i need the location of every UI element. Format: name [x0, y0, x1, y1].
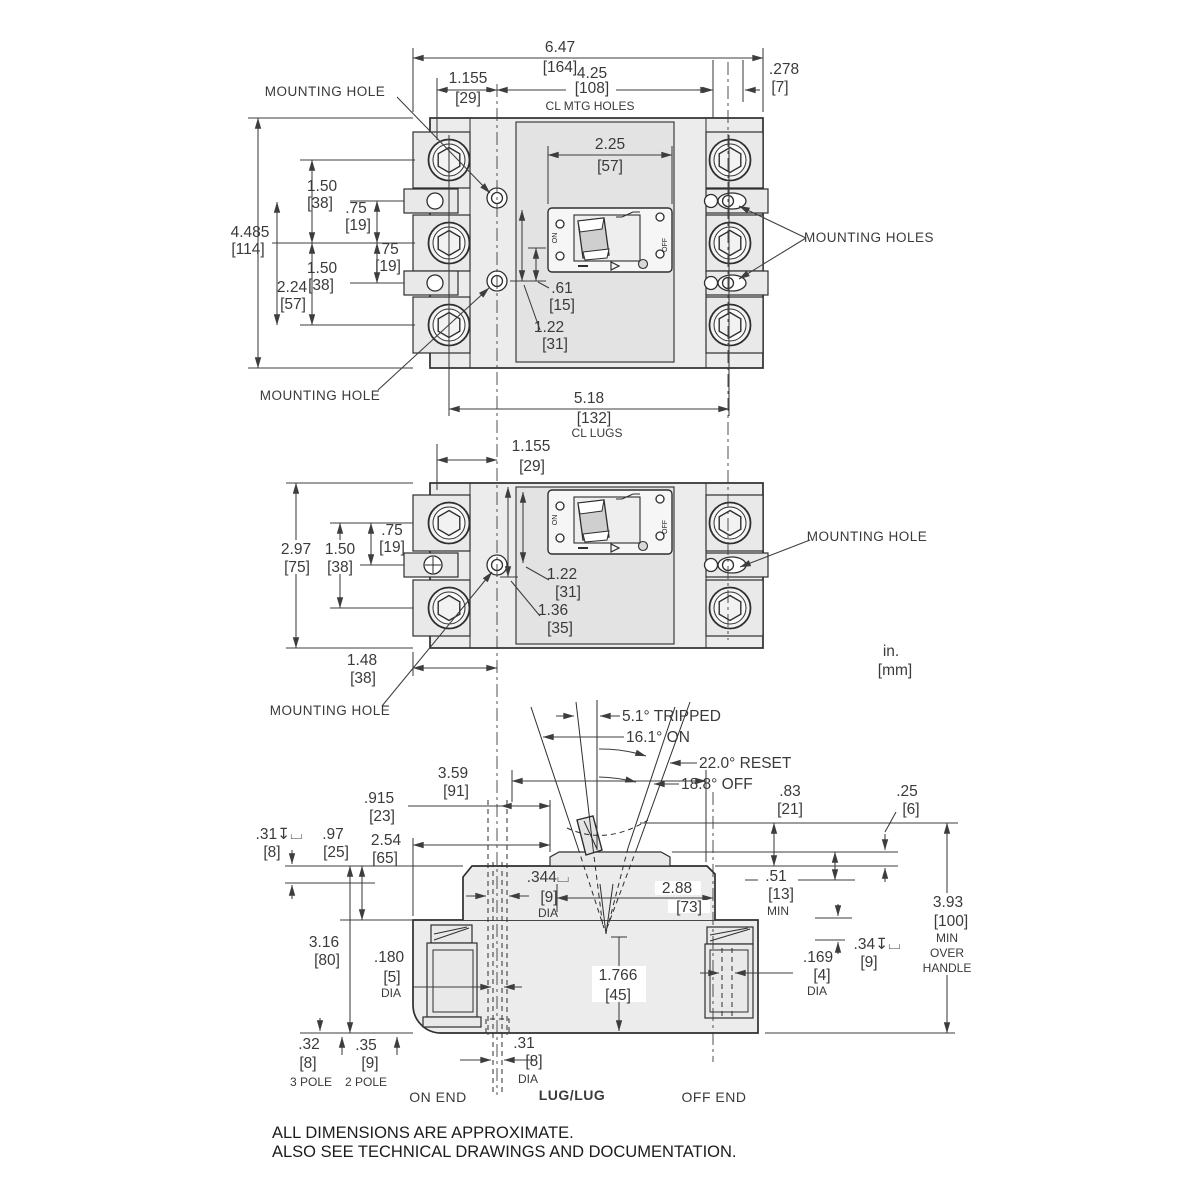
dims-32-in: .32: [298, 1036, 320, 1053]
label-mounting-hole-bottom: MOUNTING HOLE: [260, 388, 381, 403]
dim-122-in: 1.22: [534, 319, 564, 336]
dims-180-mm: [5]: [383, 969, 400, 986]
dim2-tab-mm: [19]: [379, 539, 405, 556]
dims-31cb-in: .31↧⌴: [256, 826, 303, 843]
dims-169-mm: [4]: [813, 967, 830, 984]
angle-off: 18.8° OFF: [681, 776, 753, 793]
dims-35-pole2: 2 POLE: [345, 1075, 387, 1089]
dim2-tab-in: .75: [381, 522, 403, 539]
label-mounting-hole-mid: MOUNTING HOLE: [270, 703, 391, 718]
dim-pitch-b-mm: [38]: [308, 277, 334, 294]
dims-83-in: .83: [779, 783, 801, 800]
dim-pitch-a-in: 1.50: [307, 178, 338, 195]
dims-169-dia: DIA: [807, 984, 827, 998]
dims-254-in: 2.54: [371, 832, 402, 849]
dims-25-in: .25: [896, 783, 918, 800]
dim2-hole-offset-in: 1.155: [512, 438, 551, 455]
dims-51-in: .51: [765, 868, 787, 885]
dims-359-in: 3.59: [438, 765, 468, 782]
drawing-canvas: ON OFF: [0, 0, 1200, 1200]
dims-344-dia: DIA: [538, 906, 558, 920]
dims-51-min: MIN: [767, 904, 789, 918]
dims-25-mm: [6]: [902, 801, 919, 818]
dims-180-dia: DIA: [381, 986, 401, 1000]
dims-180-in: .180: [374, 949, 405, 966]
dims-97-in: .97: [322, 826, 344, 843]
dims-393-handle: HANDLE: [923, 961, 972, 975]
dims-359-mm: [91]: [443, 783, 469, 800]
dim-tab-b-mm: [19]: [375, 258, 401, 275]
dim2-148-mm: [38]: [350, 670, 376, 687]
dims-51-mm: [13]: [768, 886, 794, 903]
dims-32-mm: [8]: [299, 1055, 316, 1072]
angle-tripped: 5.1° TRIPPED: [622, 708, 721, 725]
dims-316-mm: [80]: [314, 952, 340, 969]
dim-overall-height-mm: [114]: [231, 241, 264, 258]
dims-393-min: MIN: [936, 931, 958, 945]
units-mm-note: [mm]: [878, 662, 912, 679]
dim2-122-mm: [31]: [555, 584, 581, 601]
dim-lug-span-in: 5.18: [574, 390, 604, 407]
label-mounting-holes-right: MOUNTING HOLES: [804, 230, 934, 245]
label-mounting-hole-top: MOUNTING HOLE: [265, 84, 386, 99]
label-on-end: ON END: [409, 1089, 466, 1105]
dims-34cb-mm: [9]: [860, 954, 877, 971]
note-see-docs: ALSO SEE TECHNICAL DRAWINGS AND DOCUMENT…: [272, 1143, 737, 1161]
dims-31cb-mm: [8]: [263, 844, 280, 861]
dim2-overall-height-in: 2.97: [281, 541, 311, 558]
dim-overall-height-in: 4.485: [231, 224, 270, 241]
dims-32-pole3: 3 POLE: [290, 1075, 332, 1089]
label-off-end: OFF END: [682, 1089, 747, 1105]
dims-393-in: 3.93: [933, 894, 963, 911]
dims-35-mm: [9]: [361, 1055, 378, 1072]
handle-escutcheon: [550, 852, 670, 866]
dim-hole-offset-in: 1.155: [449, 70, 488, 87]
note-approximate: ALL DIMENSIONS ARE APPROXIMATE.: [272, 1124, 574, 1142]
dim2-pitch-mm: [38]: [327, 559, 353, 576]
dims-169-in: .169: [803, 949, 833, 966]
dim-tab-b-in: .75: [377, 241, 399, 258]
dim-face-width-in: 2.25: [595, 136, 625, 153]
dim2-overall-height-mm: [75]: [284, 559, 310, 576]
dims-288-mm: [73]: [676, 899, 702, 916]
angle-reset: 22.0° RESET: [699, 755, 792, 772]
dim-overall-width-in: 6.47: [545, 39, 575, 56]
dim2-122-in: 1.22: [547, 566, 577, 583]
dims-393-mm: [100]: [934, 913, 968, 930]
dims-83-mm: [21]: [777, 801, 803, 818]
dims-344-mm: [9]: [540, 889, 557, 906]
dim-tab-a-mm: [19]: [345, 217, 371, 234]
dims-254-mm: [65]: [372, 850, 398, 867]
dims-31-dia: DIA: [518, 1072, 538, 1086]
dim-122-mm: [31]: [542, 336, 568, 353]
units-inch-note: in.: [883, 643, 899, 660]
dims-915-in: .915: [364, 790, 394, 807]
label-lug-lug: LUG/LUG: [539, 1087, 606, 1103]
label-cl-mtg-holes: CL MTG HOLES: [546, 99, 635, 113]
breaker-dimension-drawing: ON OFF: [0, 0, 1200, 1200]
dims-97-mm: [25]: [323, 844, 349, 861]
dim-hole-span-in: 2.24: [277, 279, 308, 296]
dim2-148-in: 1.48: [347, 652, 377, 669]
dim-face-width-mm: [57]: [597, 158, 623, 175]
dim2-136-mm: [35]: [547, 620, 573, 637]
dim-61-in: .61: [551, 280, 573, 297]
footer-notes: ALL DIMENSIONS ARE APPROXIMATE. ALSO SEE…: [272, 1124, 737, 1161]
dim-tab-a-in: .75: [345, 200, 367, 217]
dim-hole-offset-mm: [29]: [455, 90, 481, 107]
dim-edge-mm: [7]: [771, 79, 788, 96]
dims-316-in: 3.16: [309, 934, 339, 951]
dim-overall-width-mm: [164]: [543, 59, 577, 76]
dim2-hole-offset-mm: [29]: [519, 458, 545, 475]
dim-lug-span-mm: [132]: [577, 410, 611, 427]
dim-61-mm: [15]: [549, 297, 575, 314]
dim-hole-span-mm: [57]: [280, 296, 306, 313]
dims-393-over: OVER: [930, 946, 964, 960]
dim-pitch-b-in: 1.50: [307, 260, 338, 277]
dim-edge-in: .278: [769, 61, 799, 78]
dim-pitch-a-mm: [38]: [307, 195, 333, 212]
dim2-pitch-in: 1.50: [325, 541, 356, 558]
dims-344-in: .344⌴: [527, 869, 570, 886]
angle-on: 16.1° ON: [626, 729, 690, 746]
dims-915-mm: [23]: [369, 808, 395, 825]
dims-35-in: .35: [355, 1037, 377, 1054]
label-cl-lugs: CL LUGS: [572, 426, 623, 440]
dims-288-in: 2.88: [662, 880, 692, 897]
dims-1766-in: 1.766: [599, 967, 638, 984]
view-front-2pole: [404, 483, 768, 648]
dims-31-mm: [8]: [525, 1053, 542, 1070]
dim-mtg-span-mm: [108]: [575, 80, 609, 97]
dims-34cb-in: .34↧⌴: [854, 936, 901, 953]
label-mounting-hole-mid-right: MOUNTING HOLE: [807, 529, 928, 544]
dims-31-in: .31: [513, 1035, 535, 1052]
dims-1766-mm: [45]: [605, 987, 631, 1004]
dim2-136-in: 1.36: [538, 602, 568, 619]
